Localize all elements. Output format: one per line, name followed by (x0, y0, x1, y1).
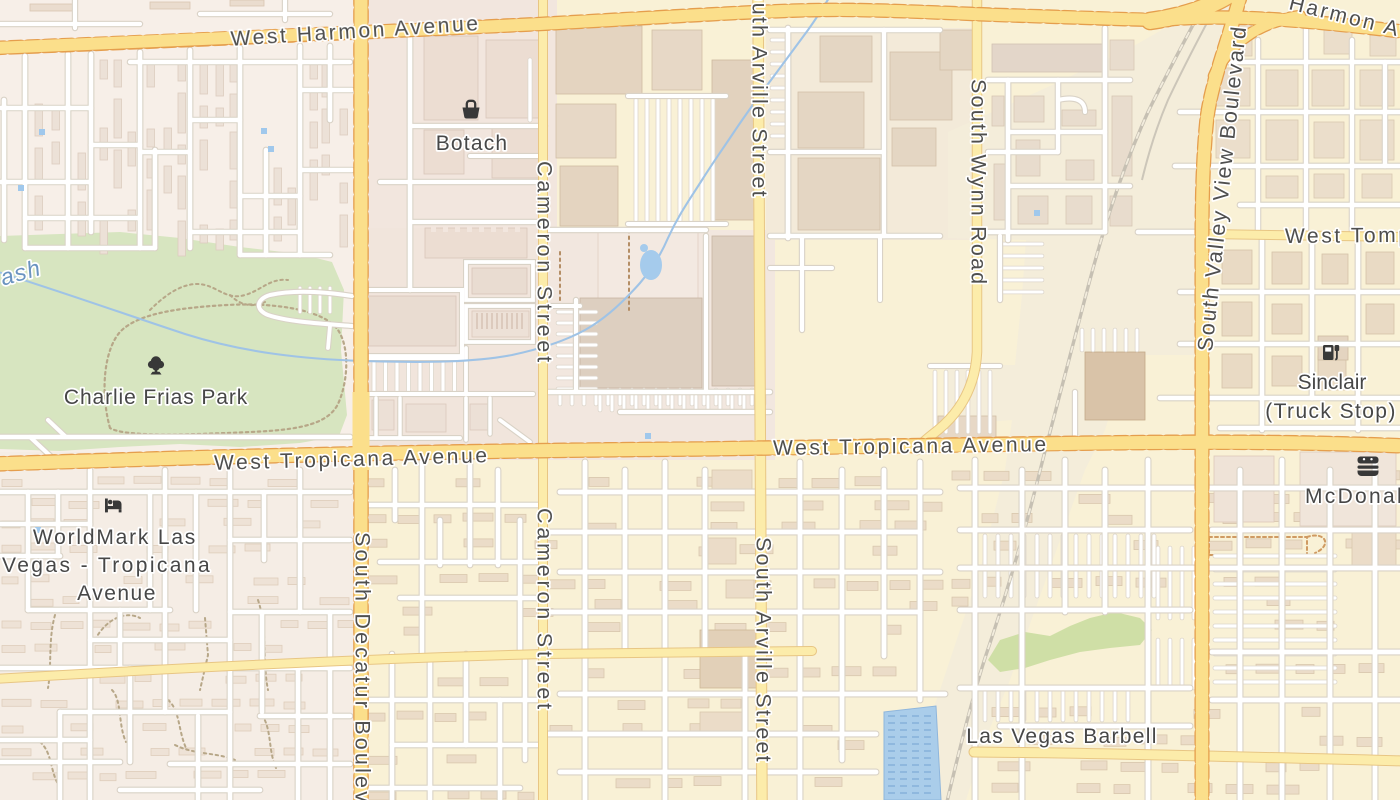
svg-text:Charlie Frias Park: Charlie Frias Park (64, 386, 248, 409)
svg-text:South Arville Street: South Arville Street (752, 537, 776, 764)
svg-text:Sinclair: Sinclair (1298, 371, 1367, 394)
svg-text:South Wynn Road: South Wynn Road (967, 79, 991, 286)
svg-text:South Decatur Boulevard: South Decatur Boulevard (351, 532, 375, 800)
svg-text:WorldMark Las: WorldMark Las (33, 526, 197, 549)
svg-text:(Truck Stop): (Truck Stop) (1265, 400, 1397, 423)
svg-text:Avenue: Avenue (77, 582, 157, 605)
svg-text:Vegas - Tropicana: Vegas - Tropicana (2, 554, 212, 577)
svg-text:McDonald's: McDonald's (1305, 485, 1400, 508)
svg-text:Botach: Botach (436, 132, 509, 155)
svg-text:West Tompkins Avenue: West Tompkins Avenue (1285, 223, 1400, 248)
svg-text:Las Vegas Barbell: Las Vegas Barbell (966, 725, 1157, 748)
svg-text:South Arville Street: South Arville Street (748, 0, 772, 199)
svg-text:West Tropicana Avenue: West Tropicana Avenue (773, 433, 1049, 460)
svg-text:Cameron Street: Cameron Street (533, 508, 557, 713)
svg-text:Cameron Street: Cameron Street (533, 161, 557, 366)
